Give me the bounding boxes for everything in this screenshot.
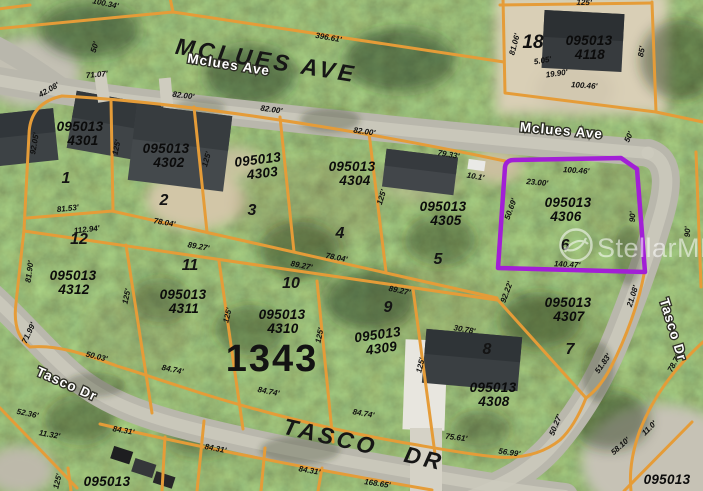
driveway <box>159 78 173 107</box>
parcel-number: 4310 <box>266 321 298 336</box>
parcel-plat: 095013 <box>545 295 592 310</box>
parcel-plat: 095013 <box>470 380 517 395</box>
parcel-number: 4311 <box>168 301 199 316</box>
parcel-number: 4301 <box>66 133 98 148</box>
parcel-number: 4118 <box>574 47 605 62</box>
dimension-label: 125' <box>576 0 593 7</box>
lot-number: 12 <box>70 231 88 248</box>
parcel-number: 4308 <box>477 394 509 409</box>
lot-number: 7 <box>566 341 576 358</box>
partial-parcel-label: 095013 <box>644 472 691 487</box>
parcel-plat: 095013 <box>545 195 592 210</box>
parcel-plat: 095013 <box>50 268 97 283</box>
parcel-number: 4305 <box>429 213 461 228</box>
lot-number: 8 <box>483 341 492 358</box>
parcel-plat: 095013 <box>143 141 190 156</box>
parcel-plat: 095013 <box>329 159 376 174</box>
parcel-plat: 095013 <box>259 307 306 322</box>
lot-number: 5 <box>434 251 444 268</box>
parcel-plat: 095013 <box>420 199 467 214</box>
lot-number: 4 <box>335 225 345 242</box>
parcel-map-canvas[interactable]: 100.34' 396.61' 125' 50' 71.07' 42.08' 8… <box>0 0 703 491</box>
lot-number: 3 <box>248 202 257 219</box>
parcel-plat: 095013 <box>566 33 613 48</box>
parcel-plat: 095013 <box>160 287 207 302</box>
dimension-label: 100.46' <box>571 80 599 91</box>
lot-number: 18 <box>522 32 544 53</box>
block-number-label: 1343 <box>226 338 319 380</box>
lot-number: 2 <box>159 192 169 209</box>
lot-number: 1 <box>62 170 71 187</box>
partial-parcel-label: 095013 <box>84 474 131 489</box>
lot-number: 10 <box>282 275 300 292</box>
parcel-number: 4306 <box>549 209 581 224</box>
dimension-label: 100.46' <box>563 165 591 176</box>
parcel-number: 4307 <box>552 309 585 324</box>
parcel-number: 4304 <box>338 173 370 188</box>
parcel-number: 4312 <box>57 282 89 297</box>
lot-number: 9 <box>384 299 393 316</box>
watermark-text: StellarMLS <box>597 233 703 263</box>
parcel-number: 4302 <box>152 155 184 170</box>
lot-number: 11 <box>182 257 199 274</box>
dimension-label: 90' <box>628 210 638 222</box>
parcel-plat: 095013 <box>57 119 104 134</box>
aerial-parcel-map[interactable]: 100.34' 396.61' 125' 50' 71.07' 42.08' 8… <box>0 0 703 491</box>
